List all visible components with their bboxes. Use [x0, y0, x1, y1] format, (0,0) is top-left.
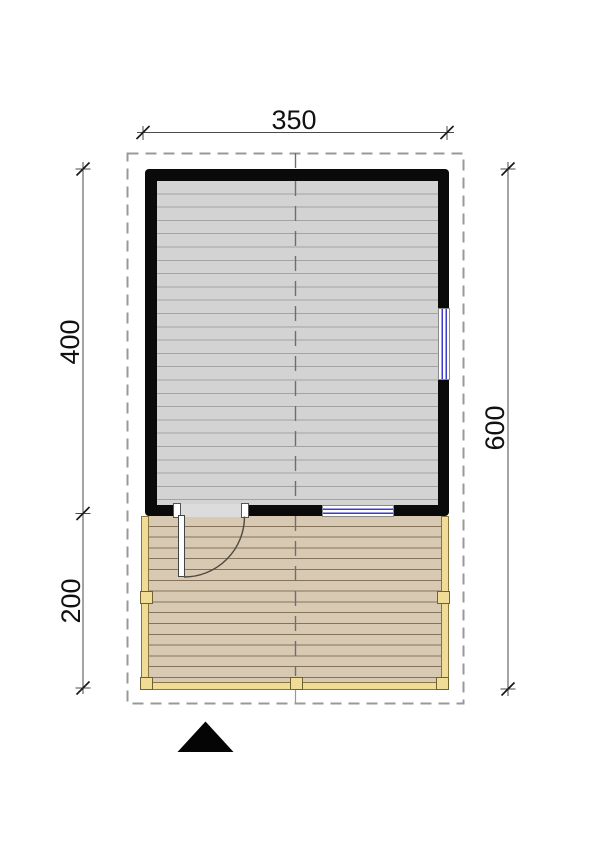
deck-post-left-mid — [140, 591, 153, 604]
north-arrow-icon — [178, 722, 234, 753]
door-jamb-right — [241, 503, 249, 518]
floor-plan-canvas: 350 400 200 600 — [0, 0, 600, 848]
window-bottom-wall — [322, 505, 394, 517]
room-floor-planks — [157, 181, 438, 505]
door-opening — [181, 504, 241, 517]
deck-post-bottom-center — [290, 677, 303, 690]
window-right-wall — [438, 308, 450, 380]
dimension-label-total-depth: 600 — [481, 388, 509, 468]
deck-post-right-mid — [437, 591, 450, 604]
deck-post-bottom-right — [436, 677, 449, 690]
deck-post-bottom-left — [140, 677, 153, 690]
dimension-label-width: 350 — [254, 106, 334, 134]
deck-floor-planks — [148, 516, 441, 683]
door-leaf — [178, 515, 185, 577]
dimension-label-deck-depth: 200 — [57, 561, 85, 641]
dimension-label-room-depth: 400 — [56, 302, 84, 382]
